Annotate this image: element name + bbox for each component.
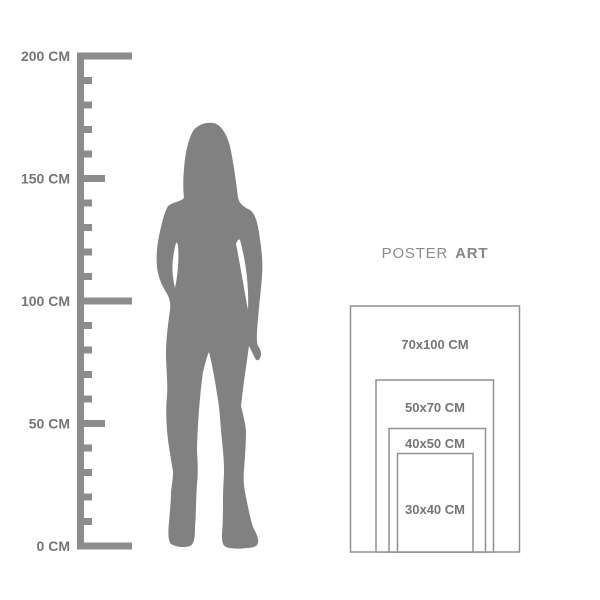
poster-size-guide: 200 CM 150 CM 100 CM 50 CM 0 CM POSTERAR… <box>0 0 600 600</box>
ruler-tick-minor <box>77 224 92 231</box>
ruler-tick-minor <box>77 126 92 133</box>
ruler-tick-50cm <box>77 420 105 427</box>
poster-size-chart: 70x100 CM 50x70 CM 40x50 CM 30x40 CM <box>351 306 520 552</box>
ruler-tick-minor <box>77 371 92 378</box>
ruler-tick-150cm <box>77 175 105 182</box>
ruler-tick-minor <box>77 396 92 403</box>
brand-title-bold: ART <box>455 245 488 262</box>
ruler-label-50cm: 50 CM <box>29 416 70 432</box>
size-guide-page: 200 CM 150 CM 100 CM 50 CM 0 CM POSTERAR… <box>0 0 600 600</box>
ruler-tick-200cm <box>77 53 132 60</box>
poster-label-70x100: 70x100 CM <box>401 337 468 352</box>
ruler-label-100cm: 100 CM <box>21 293 70 309</box>
ruler-tick-minor <box>77 347 92 354</box>
ruler-tick-minor <box>77 445 92 452</box>
ruler-tick-minor <box>77 77 92 84</box>
woman-silhouette <box>157 123 263 549</box>
ruler-tick-minor <box>77 273 92 280</box>
ruler-tick-100cm <box>77 298 132 305</box>
ruler-tick-minor <box>77 200 92 207</box>
brand-title: POSTERART <box>382 245 489 262</box>
ruler-tick-minor <box>77 322 92 329</box>
brand-title-regular: POSTER <box>382 245 448 262</box>
reference-figure <box>157 123 263 549</box>
poster-label-30x40: 30x40 CM <box>405 502 465 517</box>
ruler-label-200cm: 200 CM <box>21 48 70 64</box>
ruler-tick-minor <box>77 249 92 256</box>
ruler-tick-minor <box>77 494 92 501</box>
poster-label-50x70: 50x70 CM <box>405 400 465 415</box>
ruler-label-0cm: 0 CM <box>37 538 70 554</box>
ruler-tick-minor <box>77 102 92 109</box>
ruler-tick-minor <box>77 151 92 158</box>
ruler-tick-0cm <box>77 543 132 550</box>
height-ruler: 200 CM 150 CM 100 CM 50 CM 0 CM <box>21 48 132 554</box>
poster-label-40x50: 40x50 CM <box>405 436 465 451</box>
ruler-tick-minor <box>77 518 92 525</box>
ruler-tick-minor <box>77 469 92 476</box>
ruler-label-150cm: 150 CM <box>21 171 70 187</box>
